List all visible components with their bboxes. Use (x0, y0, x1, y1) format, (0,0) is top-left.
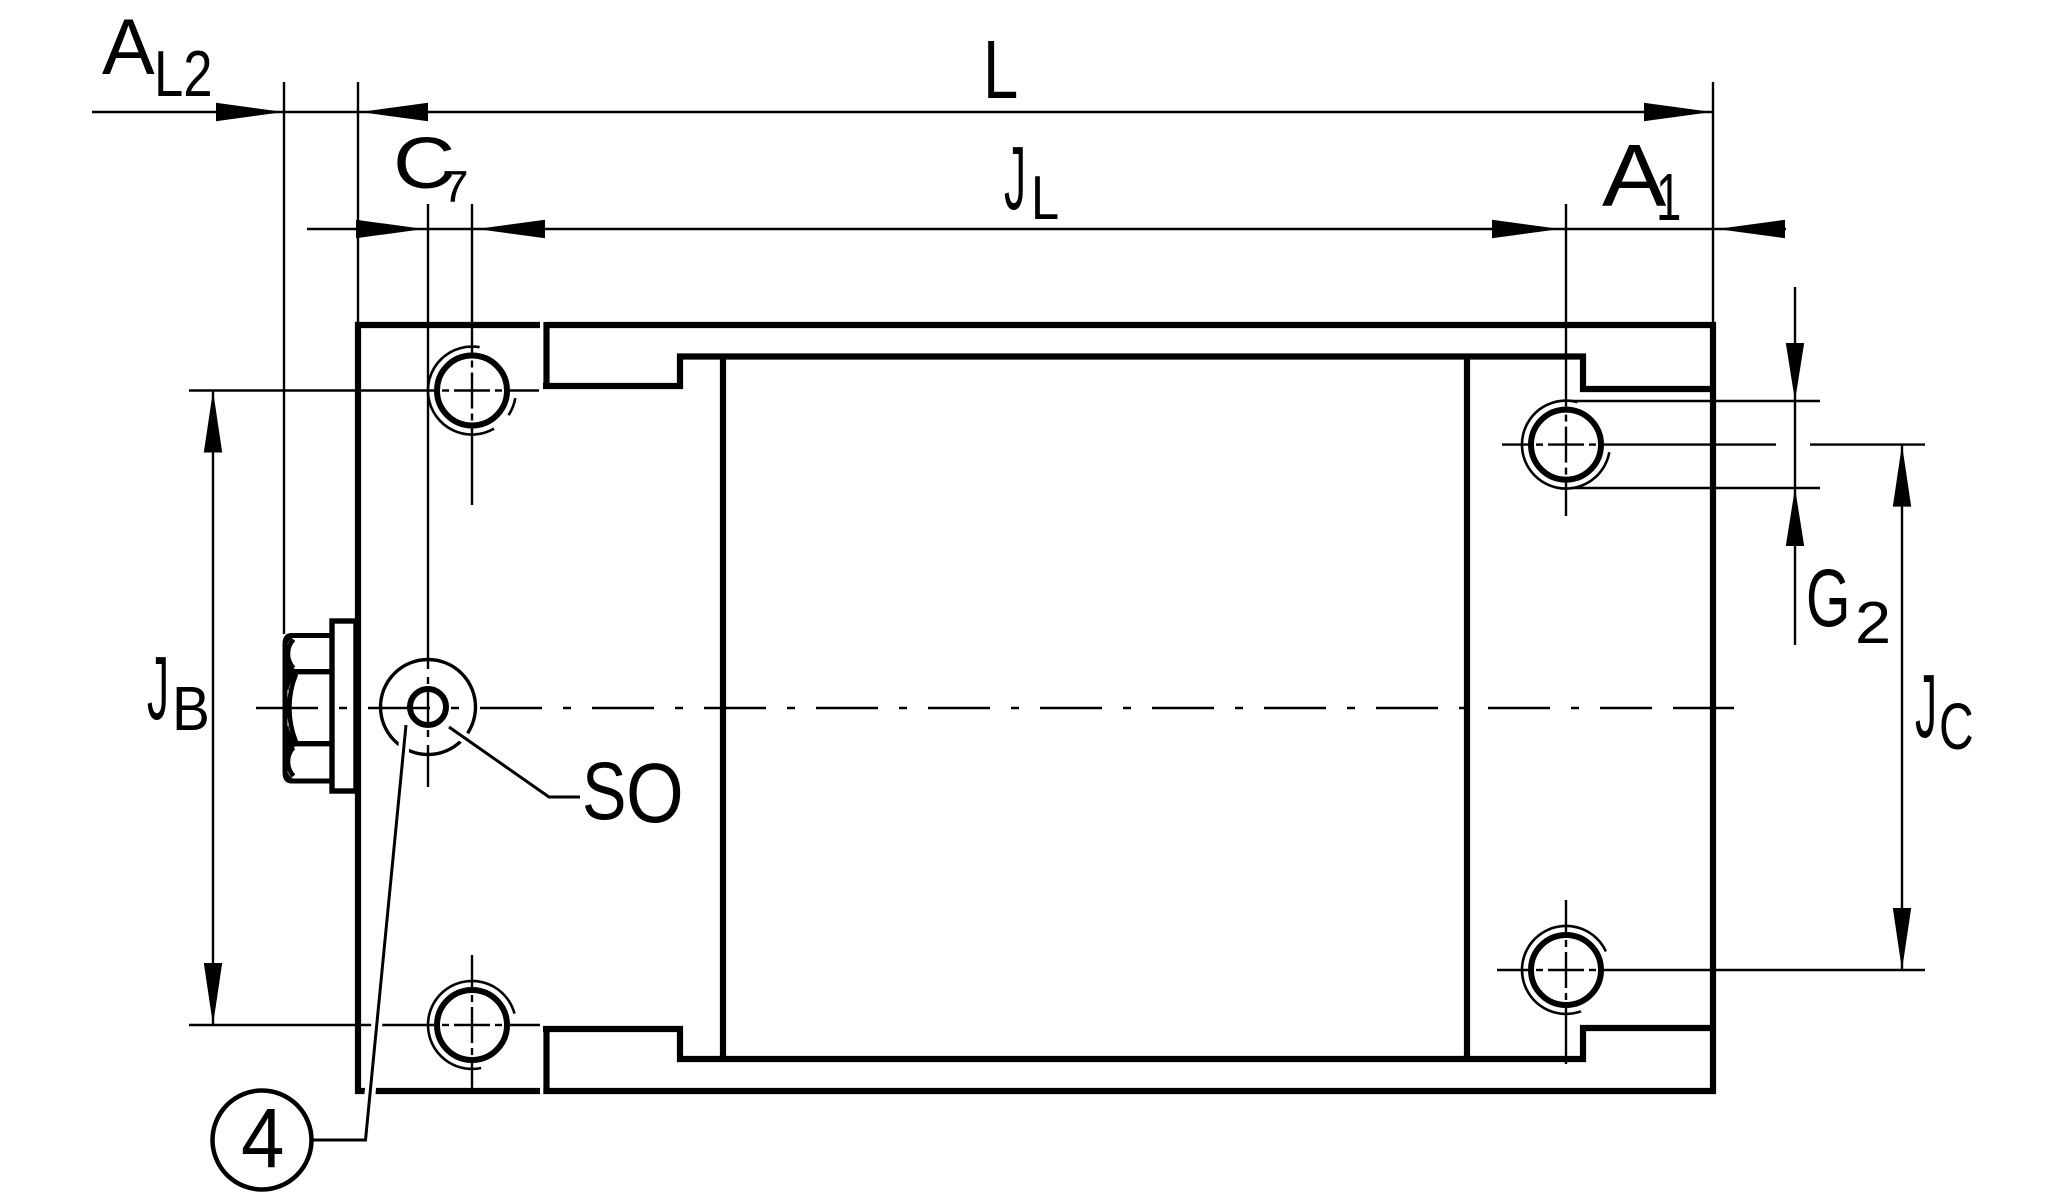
svg-text:2: 2 (1855, 591, 1891, 657)
svg-text:O: O (626, 746, 684, 840)
svg-text:L: L (1031, 163, 1059, 232)
svg-text:S: S (582, 744, 626, 836)
svg-text:L2: L2 (154, 37, 213, 111)
svg-text:G: G (1806, 552, 1850, 644)
svg-text:7: 7 (442, 162, 469, 212)
svg-text:J: J (1004, 129, 1026, 229)
svg-text:L: L (983, 23, 1018, 116)
svg-text:A: A (102, 2, 155, 91)
svg-text:1: 1 (1656, 160, 1681, 235)
svg-text:J: J (1915, 657, 1937, 757)
svg-text:C: C (1939, 691, 1974, 764)
svg-text:4: 4 (241, 1092, 284, 1185)
svg-text:B: B (172, 673, 210, 743)
svg-text:J: J (147, 639, 169, 739)
